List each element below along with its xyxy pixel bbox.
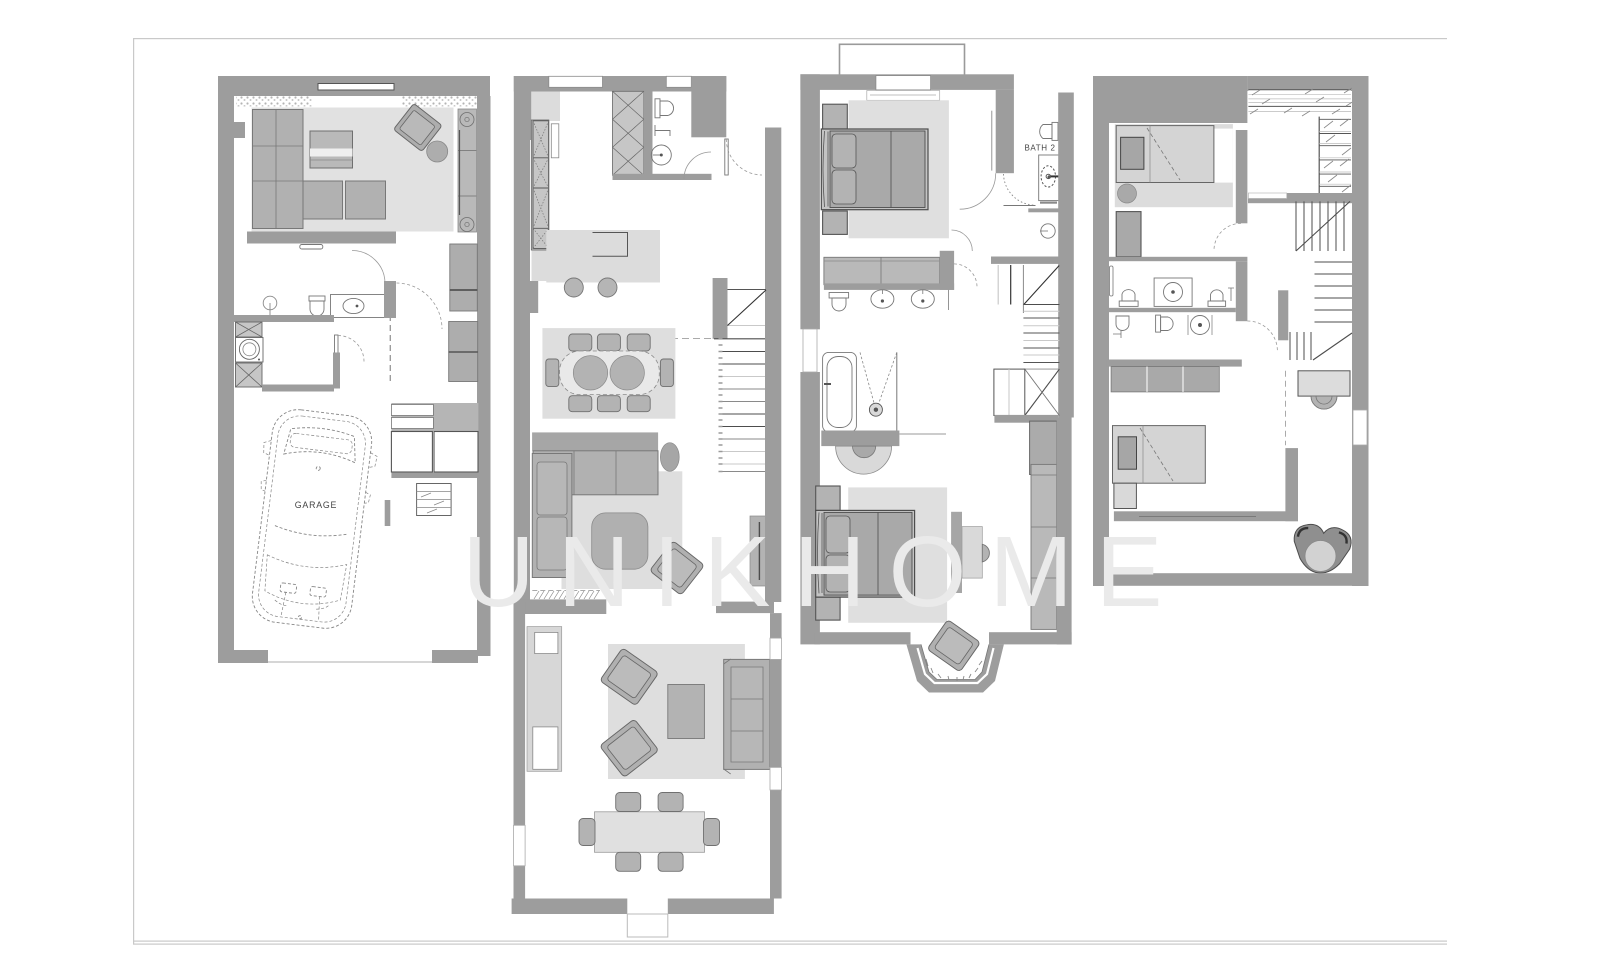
svg-text:GARAGE: GARAGE (295, 500, 337, 510)
svg-text:UNIKHOME: UNIKHOME (463, 516, 1186, 628)
svg-text:BATH 2: BATH 2 (1024, 144, 1055, 153)
